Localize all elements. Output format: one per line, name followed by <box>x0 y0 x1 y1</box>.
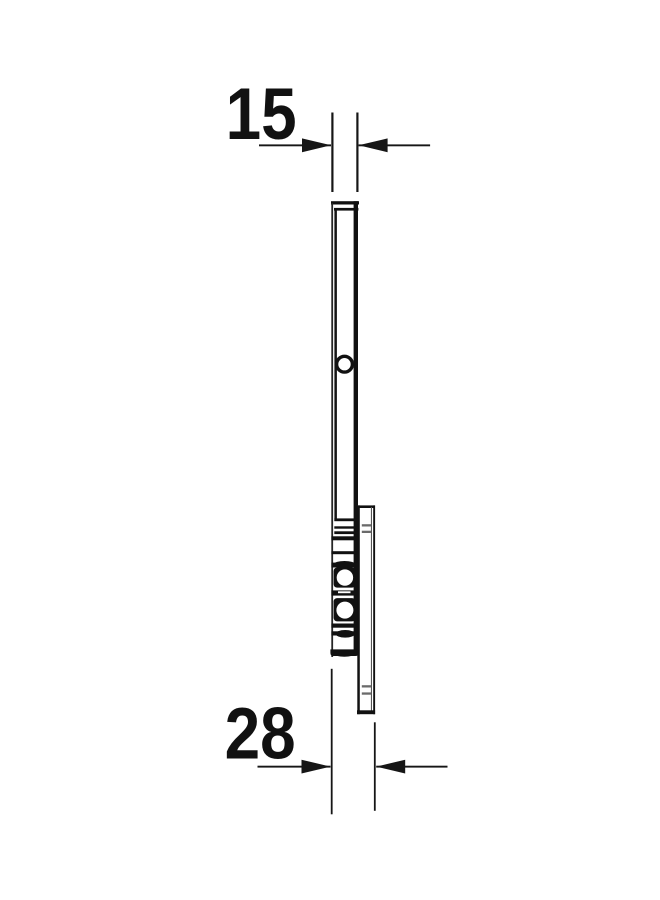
svg-text:15: 15 <box>226 74 297 155</box>
svg-text:28: 28 <box>225 693 296 774</box>
